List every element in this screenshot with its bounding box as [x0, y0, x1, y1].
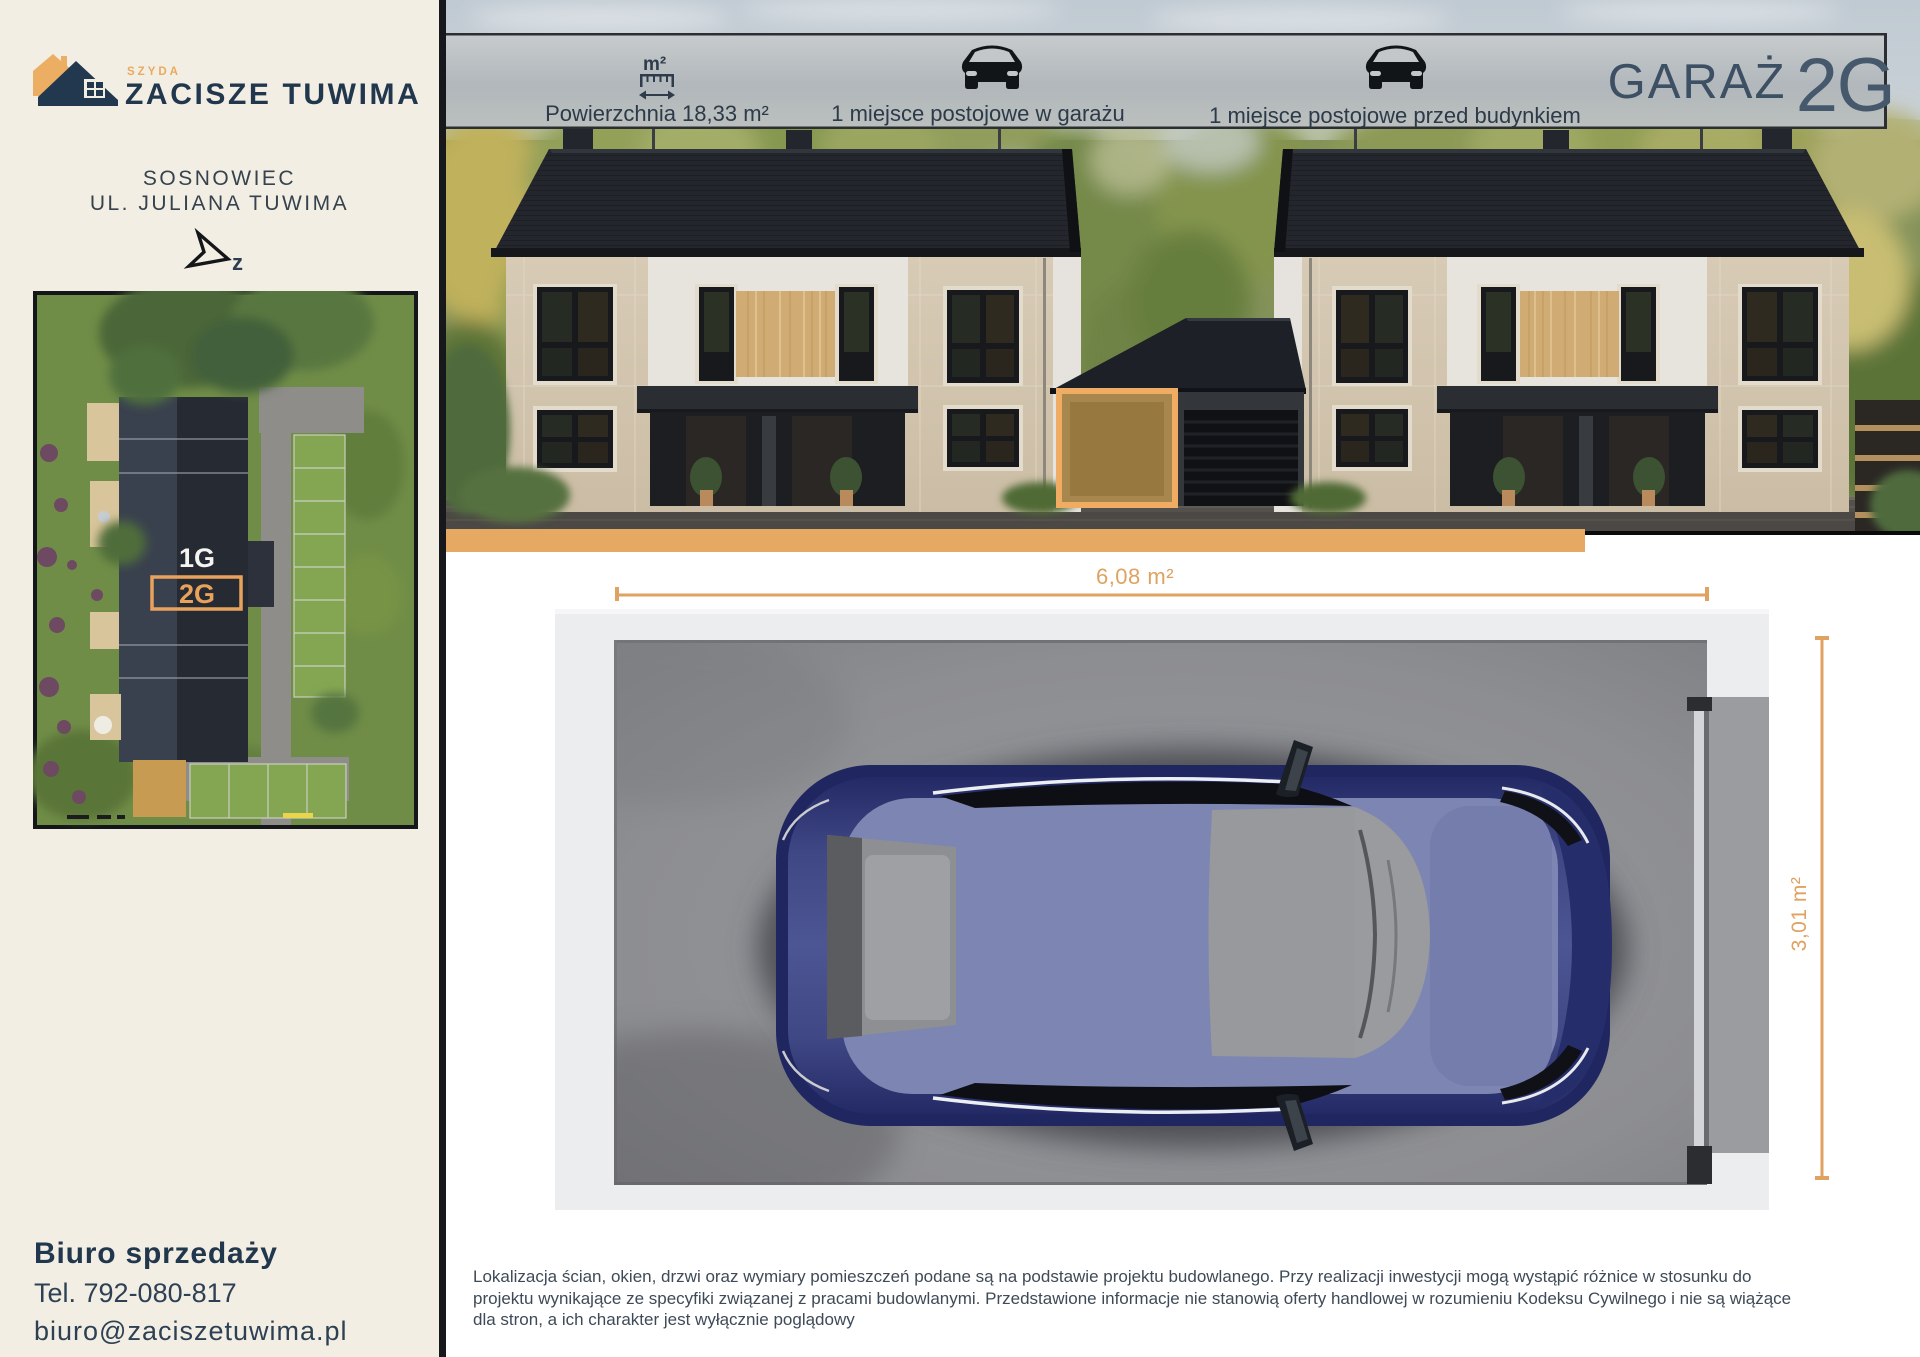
svg-text:ZACISZE TUWIMA: ZACISZE TUWIMA — [125, 78, 421, 111]
svg-text:1G: 1G — [179, 543, 215, 573]
svg-text:SZYDA: SZYDA — [127, 66, 181, 78]
svg-text:6,08 m²: 6,08 m² — [1096, 564, 1174, 589]
svg-text:GARAŻ: GARAŻ — [1608, 55, 1787, 109]
svg-text:3,01 m²: 3,01 m² — [1788, 877, 1811, 952]
svg-text:2G: 2G — [1796, 43, 1894, 128]
svg-text:z: z — [232, 250, 243, 275]
svg-text:m²: m² — [643, 54, 666, 75]
svg-text:2G: 2G — [179, 579, 215, 609]
